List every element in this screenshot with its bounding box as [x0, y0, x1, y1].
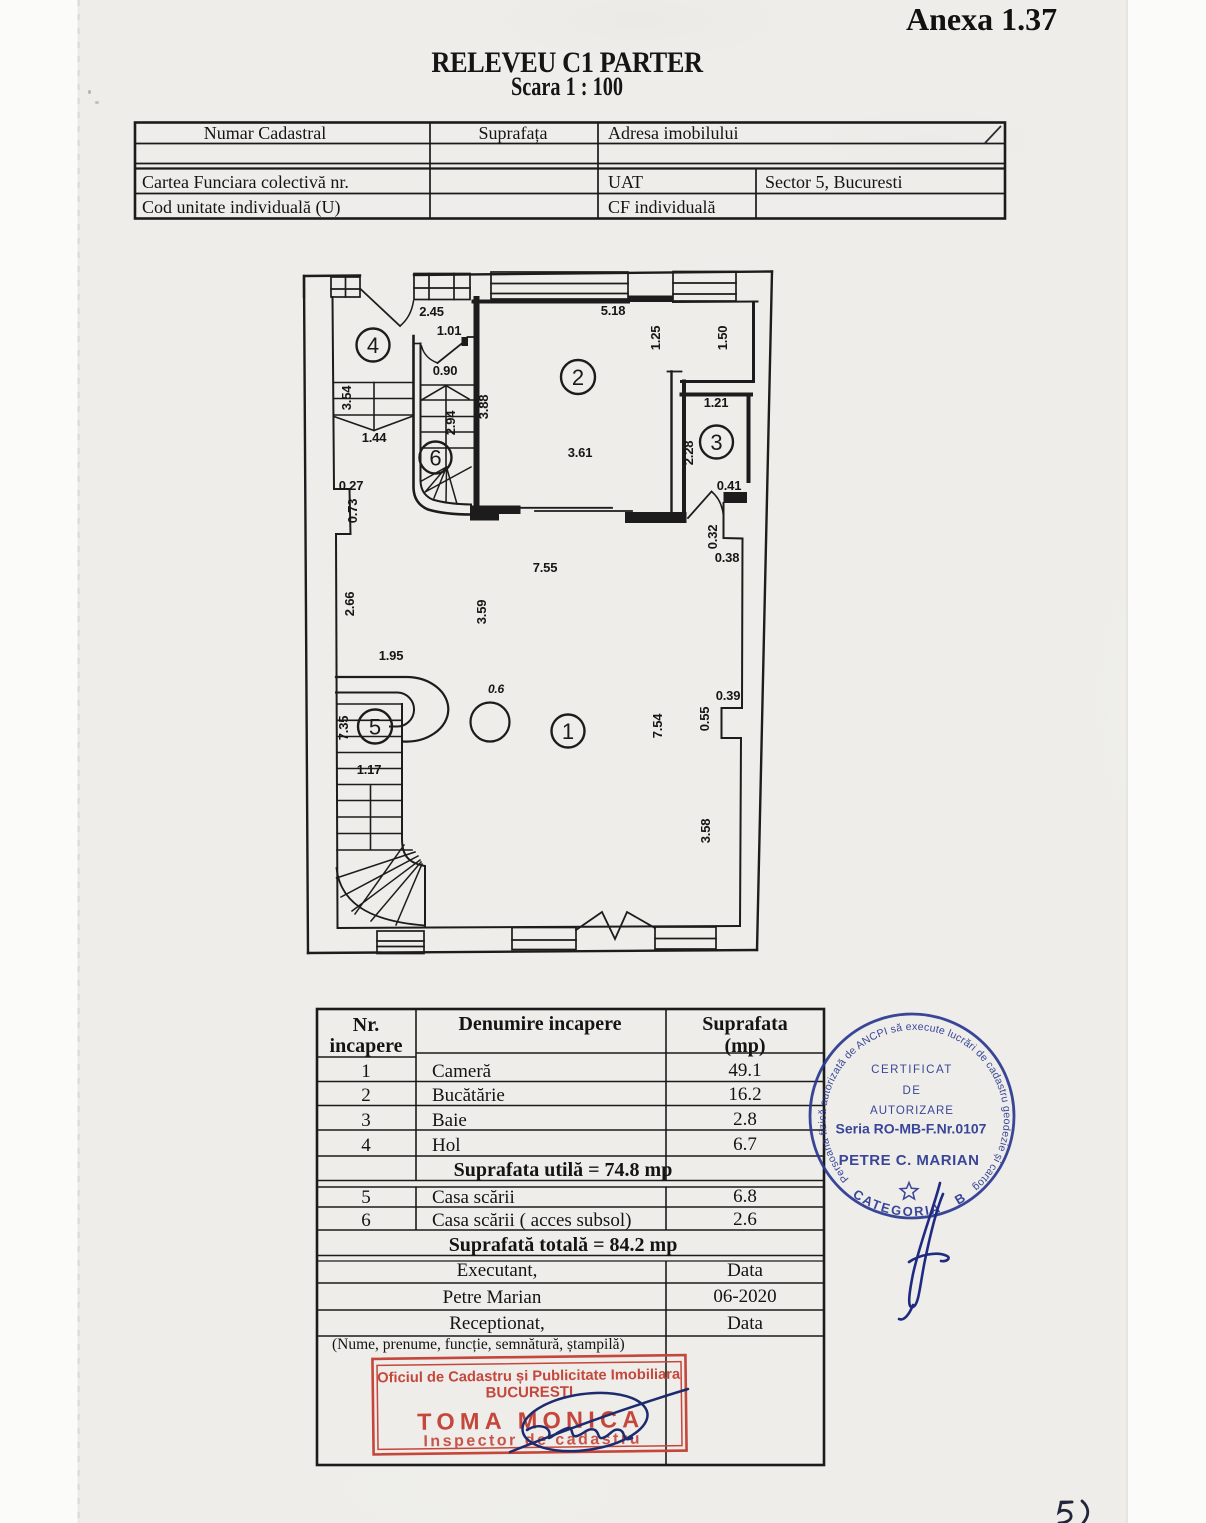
svg-text:3.61: 3.61: [568, 445, 593, 460]
svg-text:DE: DE: [903, 1085, 922, 1097]
svg-text:0.73: 0.73: [345, 499, 360, 524]
svg-text:7.35: 7.35: [336, 716, 351, 741]
svg-text:AUTORIZARE: AUTORIZARE: [870, 1105, 954, 1117]
svg-text:0.39: 0.39: [716, 688, 741, 703]
svg-text:2.45: 2.45: [419, 304, 444, 319]
svg-text:0.55: 0.55: [697, 707, 712, 732]
svg-text:0.38: 0.38: [715, 550, 740, 565]
svg-text:0.32: 0.32: [705, 525, 720, 550]
svg-text:6: 6: [429, 446, 441, 471]
svg-text:1.95: 1.95: [379, 648, 404, 663]
svg-text:CATEGORIA B: CATEGORIA B: [850, 1186, 969, 1219]
svg-text:PETRE C. MARIAN: PETRE C. MARIAN: [839, 1152, 980, 1169]
svg-text:1.50: 1.50: [715, 326, 730, 351]
svg-text:1.01: 1.01: [437, 323, 462, 338]
svg-text:0.41: 0.41: [717, 478, 742, 493]
svg-text:3.59: 3.59: [474, 600, 489, 625]
svg-text:3.58: 3.58: [698, 819, 713, 844]
svg-text:7.55: 7.55: [533, 560, 558, 575]
svg-text:2.94: 2.94: [443, 410, 458, 435]
svg-text:1.17: 1.17: [357, 762, 382, 777]
svg-text:1.44: 1.44: [362, 430, 387, 445]
svg-text:2.66: 2.66: [342, 592, 357, 617]
svg-text:2.28: 2.28: [681, 441, 696, 466]
svg-text:0.90: 0.90: [433, 363, 458, 378]
svg-text:0.27: 0.27: [339, 478, 364, 493]
svg-text:5: 5: [369, 715, 381, 740]
svg-text:1.25: 1.25: [648, 326, 663, 351]
svg-text:0.6: 0.6: [488, 682, 505, 696]
svg-text:7.54: 7.54: [650, 713, 665, 738]
svg-text:CERTIFICAT: CERTIFICAT: [871, 1064, 953, 1076]
svg-text:Seria RO-MB-F.Nr.0107: Seria RO-MB-F.Nr.0107: [836, 1121, 987, 1137]
svg-text:3: 3: [710, 430, 722, 455]
svg-text:2: 2: [572, 365, 584, 390]
svg-text:3.88: 3.88: [476, 395, 491, 420]
svg-text:1.21: 1.21: [704, 395, 729, 410]
svg-text:1: 1: [562, 719, 574, 744]
svg-text:4: 4: [367, 333, 379, 358]
svg-text:3.54: 3.54: [339, 385, 354, 410]
svg-text:5.18: 5.18: [601, 303, 626, 318]
svg-text:Inspector de cadastru: Inspector de cadastru: [423, 1431, 639, 1451]
